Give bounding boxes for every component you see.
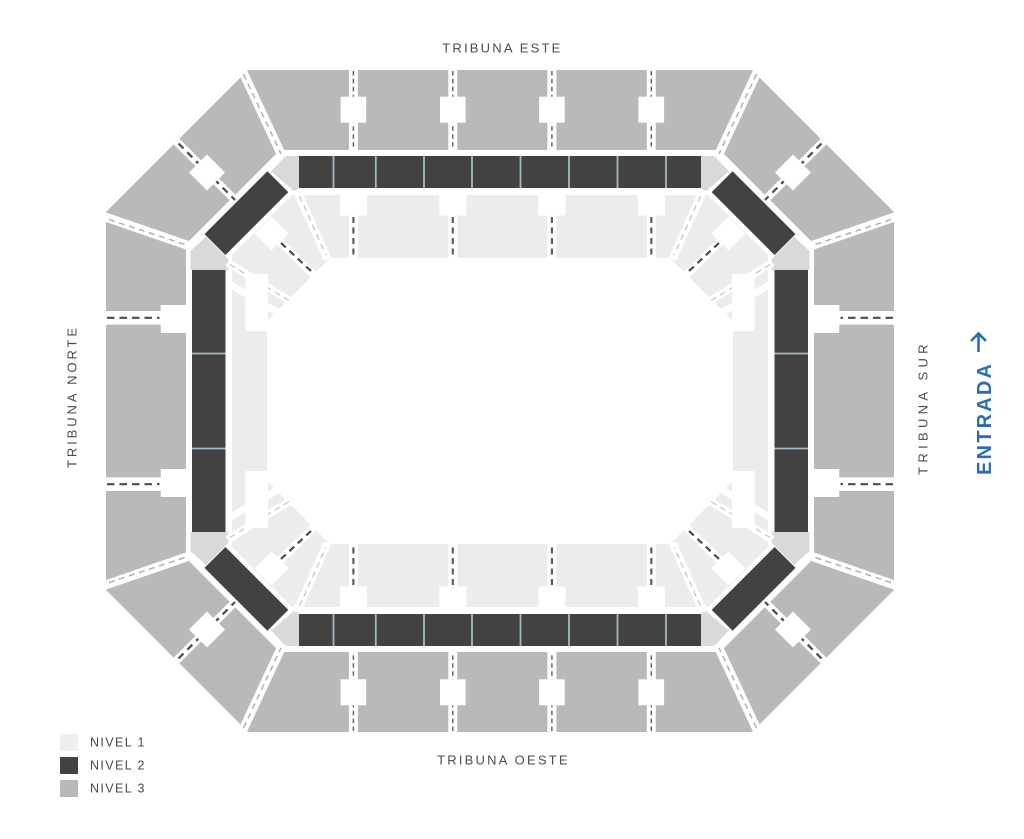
- svg-text:TRIBUNA OESTE: TRIBUNA OESTE: [437, 753, 570, 768]
- svg-text:TRIBUNA ESTE: TRIBUNA ESTE: [442, 41, 562, 56]
- svg-text:NIVEL 2: NIVEL 2: [90, 759, 146, 773]
- svg-text:NIVEL 1: NIVEL 1: [90, 736, 146, 750]
- svg-text:TRIBUNA SUR: TRIBUNA SUR: [916, 340, 931, 475]
- svg-text:ENTRADA: ENTRADA: [974, 362, 996, 475]
- svg-text:TRIBUNA NORTE: TRIBUNA NORTE: [65, 325, 80, 468]
- svg-text:NIVEL 3: NIVEL 3: [90, 782, 146, 796]
